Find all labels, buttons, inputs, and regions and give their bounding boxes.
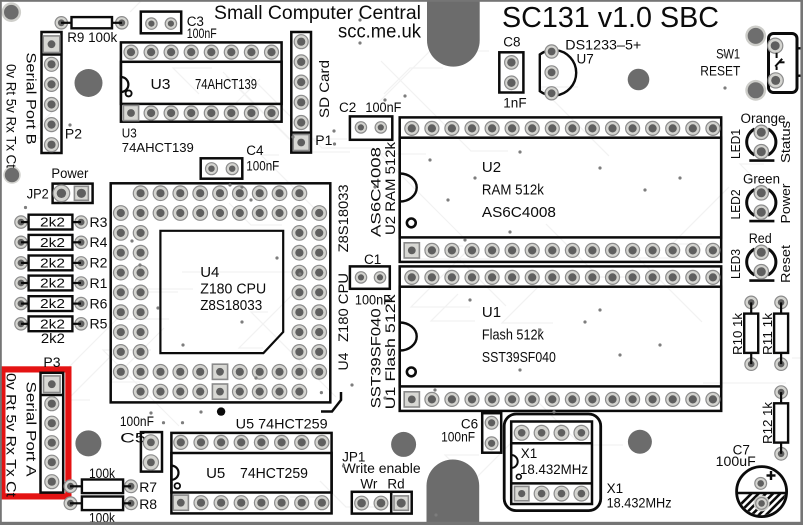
svg-text:U7: U7: [577, 52, 594, 67]
svg-text:LED2: LED2: [728, 190, 743, 220]
svg-text:U2: U2: [482, 159, 501, 176]
svg-text:P2: P2: [65, 126, 82, 142]
svg-text:C4: C4: [246, 143, 264, 158]
svg-text:100nF: 100nF: [355, 293, 391, 308]
svg-text:Rd: Rd: [387, 476, 404, 491]
svg-text:R6: R6: [90, 295, 108, 311]
svg-text:DS1233–5+: DS1233–5+: [565, 38, 641, 53]
svg-text:R8: R8: [139, 496, 157, 512]
svg-text:R10 1k: R10 1k: [730, 313, 745, 355]
svg-text:100nF: 100nF: [187, 26, 217, 41]
svg-text:1nF: 1nF: [503, 96, 526, 111]
svg-text:R1: R1: [90, 275, 108, 291]
svg-text:U3: U3: [122, 126, 137, 141]
svg-text:LED1: LED1: [728, 129, 743, 159]
svg-text:100nF: 100nF: [365, 100, 401, 115]
svg-text:74AHCT139: 74AHCT139: [122, 140, 194, 155]
svg-text:Power: Power: [778, 183, 793, 224]
svg-text:Wr: Wr: [360, 476, 377, 491]
svg-text:R4: R4: [90, 234, 108, 250]
svg-text:74AHCT139: 74AHCT139: [195, 76, 257, 93]
svg-text:Red: Red: [749, 231, 772, 246]
svg-text:C1: C1: [364, 252, 381, 267]
svg-text:R2: R2: [90, 255, 108, 271]
svg-text:0v Rt 5v Rx Tx Ct: 0v Rt 5v Rx Tx Ct: [4, 64, 19, 168]
svg-text:C2: C2: [339, 100, 356, 115]
svg-text:Flash 512k: Flash 512k: [482, 327, 544, 344]
svg-text:Status: Status: [778, 120, 793, 163]
svg-text:100nF: 100nF: [120, 414, 154, 429]
svg-text:Power: Power: [51, 165, 88, 181]
svg-text:2k2: 2k2: [40, 235, 65, 250]
svg-text:scc.me.uk: scc.me.uk: [338, 22, 421, 43]
svg-text:Z8S18033: Z8S18033: [335, 184, 351, 252]
svg-text:U5 74HCT259: U5 74HCT259: [236, 416, 328, 432]
svg-text:P1: P1: [315, 132, 332, 148]
svg-text:U5: U5: [206, 465, 225, 482]
svg-text:JP2: JP2: [27, 185, 49, 201]
svg-text:R3: R3: [90, 214, 108, 230]
svg-text:Serial Port A: Serial Port A: [24, 382, 39, 477]
svg-text:Serial Port B: Serial Port B: [24, 53, 39, 145]
svg-text:RESET: RESET: [700, 63, 740, 78]
svg-text:2k2: 2k2: [40, 215, 65, 230]
svg-text:Z180 CPU: Z180 CPU: [200, 281, 266, 298]
svg-text:Reset: Reset: [778, 245, 793, 283]
svg-text:U4: U4: [335, 352, 351, 370]
svg-text:X1: X1: [607, 481, 624, 496]
svg-text:SW1: SW1: [716, 46, 740, 61]
svg-text:2k2: 2k2: [40, 296, 65, 311]
svg-text:X1: X1: [521, 446, 538, 461]
svg-text:LED3: LED3: [728, 249, 743, 279]
svg-text:Green: Green: [743, 172, 780, 187]
svg-text:R5: R5: [90, 316, 108, 332]
svg-text:2k2: 2k2: [41, 331, 65, 346]
svg-text:SST39SF040: SST39SF040: [369, 308, 384, 408]
svg-text:18.432MHz: 18.432MHz: [520, 462, 588, 477]
svg-text:74HCT259: 74HCT259: [240, 465, 308, 482]
svg-text:U4: U4: [200, 264, 219, 281]
svg-text:R9 100k: R9 100k: [67, 30, 117, 45]
svg-text:2k2: 2k2: [40, 316, 65, 331]
svg-text:RAM 512k: RAM 512k: [482, 182, 544, 199]
svg-text:C8: C8: [503, 35, 520, 50]
svg-text:SD Card: SD Card: [316, 60, 332, 118]
svg-text:2k2: 2k2: [40, 256, 65, 271]
svg-text:100nF: 100nF: [246, 159, 279, 174]
svg-text:Z8S18033: Z8S18033: [200, 297, 262, 314]
svg-text:18.432MHz: 18.432MHz: [607, 495, 672, 510]
svg-text:R11 1k: R11 1k: [760, 312, 775, 355]
svg-text:AS6C4008: AS6C4008: [369, 147, 384, 237]
svg-text:SST39SF040: SST39SF040: [482, 349, 556, 366]
svg-text:SC131 v1.0 SBC: SC131 v1.0 SBC: [502, 2, 719, 34]
svg-text:U1 Flash 512k: U1 Flash 512k: [383, 294, 398, 409]
svg-text:R7: R7: [139, 479, 157, 495]
svg-text:R12 1k: R12 1k: [760, 402, 775, 444]
svg-text:Write enable: Write enable: [343, 461, 421, 476]
svg-text:100uF: 100uF: [716, 454, 756, 469]
svg-text:2k2: 2k2: [40, 276, 65, 291]
svg-text:P3: P3: [43, 354, 60, 370]
svg-text:U2 RAM 512k: U2 RAM 512k: [383, 142, 398, 235]
svg-text:100k: 100k: [89, 466, 115, 481]
svg-text:U3: U3: [151, 76, 171, 93]
svg-text:AS6C4008: AS6C4008: [482, 204, 556, 221]
svg-text:0v Rt 5v Rx Tx Ct: 0v Rt 5v Rx Tx Ct: [4, 373, 19, 497]
svg-text:100nF: 100nF: [441, 429, 475, 444]
svg-text:U1: U1: [482, 304, 501, 321]
